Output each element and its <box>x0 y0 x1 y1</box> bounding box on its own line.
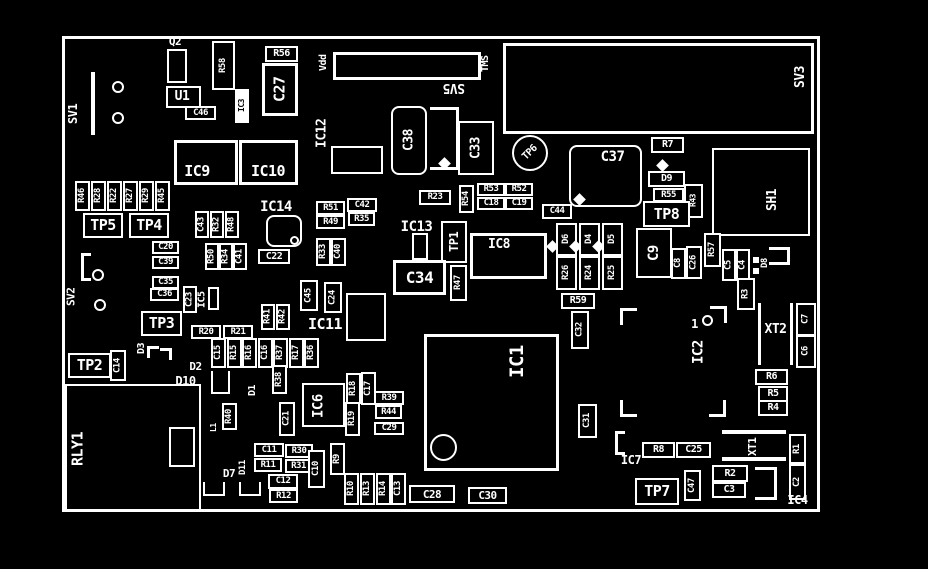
sv3-designator: SV3 <box>790 57 811 98</box>
ic2-pin1-label: 1 <box>689 316 700 332</box>
ic9-designator: IC9 <box>178 162 216 181</box>
tp1-designator: TP1 <box>441 221 467 263</box>
r21-designator: R21 <box>223 325 253 339</box>
r19-designator: R19 <box>345 402 360 436</box>
ic1-designator: IC1 <box>502 336 533 387</box>
r46-designator: R46 <box>75 181 90 211</box>
c7-designator: C7 <box>796 303 816 336</box>
r9-designator: R9 <box>330 443 345 475</box>
d11-pads <box>239 482 261 496</box>
tp3-designator: TP3 <box>141 311 182 336</box>
tp6-diagonal-label: TP6 <box>521 144 540 163</box>
r55-designator: R55 <box>653 188 684 202</box>
ic12-designator: IC12 <box>313 110 331 157</box>
vdd-designator: Vdd <box>317 46 331 79</box>
ic2-pin1 <box>702 315 713 326</box>
d7-pads <box>203 482 225 496</box>
tp7-designator: TP7 <box>635 478 679 505</box>
sv1-pad-2 <box>112 112 124 124</box>
r24-designator: R24 <box>579 256 600 290</box>
r50-designator: R50 <box>205 243 219 270</box>
xt2-designator: XT2 <box>759 319 792 339</box>
r6-designator: R6 <box>755 369 788 385</box>
c40-designator: C40 <box>331 238 346 266</box>
r51-designator: R51 <box>316 201 345 215</box>
ic12-outline <box>331 146 383 174</box>
r44-designator: R44 <box>375 405 402 419</box>
q2-designator: Q2 <box>164 35 186 48</box>
c25-designator: C25 <box>676 442 711 458</box>
tp8-designator: TP8 <box>643 201 690 227</box>
ic2-designator: IC2 <box>687 334 710 371</box>
r4-designator: R4 <box>758 400 788 416</box>
c23-designator: C23 <box>183 286 197 313</box>
sv2-pad-2 <box>94 299 106 311</box>
r20-designator: R20 <box>191 325 221 339</box>
c33-designator: C33 <box>458 121 494 175</box>
c30-designator: C30 <box>468 487 507 504</box>
r56-designator: R56 <box>265 46 298 62</box>
r29-designator: R29 <box>139 181 154 211</box>
c15-designator: C15 <box>211 338 226 368</box>
r58-designator: R58 <box>212 41 235 90</box>
c12-designator: C12 <box>268 474 298 489</box>
c36-designator: C36 <box>150 288 179 301</box>
pcb-silkscreen-view: SV1Q2R58R56C27U1C46IC3IC9IC10VddTMSSV5IC… <box>0 0 928 569</box>
c27-designator: C27 <box>262 63 298 116</box>
c3-designator: C3 <box>712 482 746 498</box>
r8-designator: R8 <box>642 442 675 458</box>
r17-designator: R17 <box>289 338 304 368</box>
r36-designator: R36 <box>304 338 319 368</box>
ic2-corner <box>620 308 637 325</box>
c4-designator: C4 <box>736 249 750 281</box>
ic1-pin1 <box>430 434 457 461</box>
ic2-corner <box>620 400 637 417</box>
c14-designator: C14 <box>110 350 126 381</box>
r22-designator: R22 <box>107 181 122 211</box>
r53-designator: R53 <box>477 183 505 196</box>
sv1-pad-1 <box>112 81 124 93</box>
d10-pads <box>211 371 230 394</box>
ic11-designator: IC11 <box>300 316 350 333</box>
sv2-designator: SV2 <box>63 281 79 312</box>
c5-designator: C5 <box>722 249 736 281</box>
sv2-pad-1 <box>92 269 104 281</box>
pad-mark <box>147 346 159 358</box>
pad-mark <box>160 348 172 360</box>
c38-designator: C38 <box>391 106 427 175</box>
r25-designator: R25 <box>602 256 623 290</box>
c13-designator: C13 <box>391 473 406 505</box>
d8-bracket <box>769 247 790 265</box>
sh1-outline <box>712 148 810 236</box>
c37-designator: C37 <box>590 148 635 165</box>
c22-designator: C22 <box>258 249 290 264</box>
r14-designator: R14 <box>376 473 391 505</box>
sv5-connector <box>333 52 481 80</box>
r41-designator: R41 <box>261 304 275 330</box>
c6-designator: C6 <box>796 335 816 368</box>
ic4-designator: IC4 <box>784 493 811 507</box>
d11-designator: D11 <box>237 457 250 479</box>
ic7-bracket <box>615 431 625 455</box>
c31-designator: C31 <box>578 404 597 438</box>
r18-designator: R18 <box>346 373 361 404</box>
r27-designator: R27 <box>123 181 138 211</box>
ic8-designator: IC8 <box>482 237 516 252</box>
ic14-designator: IC14 <box>252 199 300 215</box>
ic6-designator: IC6 <box>307 389 330 424</box>
r10-designator: R10 <box>344 473 359 505</box>
r48-designator: R48 <box>225 211 239 238</box>
c47-designator: C47 <box>684 470 701 501</box>
c41-designator: C41 <box>233 243 247 270</box>
r47-designator: R47 <box>450 265 467 301</box>
tp4-designator: TP4 <box>129 213 169 238</box>
r39-designator: R39 <box>374 391 404 405</box>
r33-designator: R33 <box>316 238 331 266</box>
r16-designator: R16 <box>242 338 257 368</box>
ic5-outline <box>208 287 219 310</box>
r42-designator: R42 <box>276 304 290 330</box>
c20-designator: C20 <box>152 241 179 254</box>
c19-designator: C19 <box>505 197 533 210</box>
r2-c3-bracket <box>755 467 777 500</box>
c16-designator: C16 <box>258 338 273 368</box>
ic13-outline <box>412 233 428 260</box>
r35-designator: R35 <box>348 212 375 226</box>
r7-designator: R7 <box>651 137 684 153</box>
r40-designator: R40 <box>222 403 237 430</box>
r23-designator: R23 <box>419 190 451 205</box>
c21-designator: C21 <box>279 402 295 436</box>
c32-designator: C32 <box>571 311 589 349</box>
c28-designator: C28 <box>409 485 455 503</box>
r11-designator: R11 <box>254 458 282 472</box>
r26-designator: R26 <box>556 256 577 290</box>
r38-designator: R38 <box>272 365 287 394</box>
c39-designator: C39 <box>152 256 179 269</box>
r54-designator: R54 <box>459 185 474 213</box>
d5-designator: D5 <box>602 223 623 256</box>
c9-designator: C9 <box>636 228 672 278</box>
r28-designator: R28 <box>91 181 106 211</box>
r15-designator: R15 <box>227 338 242 368</box>
r37-designator: R37 <box>273 338 288 368</box>
r12-designator: R12 <box>269 489 298 503</box>
ic2-corner <box>709 400 726 417</box>
tp6-designator: TP6 <box>512 135 548 171</box>
tms-designator: TMS <box>479 47 493 81</box>
c44-designator: C44 <box>542 204 572 219</box>
ic7-designator: IC7 <box>617 453 645 467</box>
c11-designator: C11 <box>254 443 284 457</box>
c18-designator: C18 <box>477 197 505 210</box>
r57-designator: R57 <box>704 233 721 267</box>
r49-designator: R49 <box>316 215 345 229</box>
tp5-designator: TP5 <box>83 213 123 238</box>
c34-designator: C34 <box>393 260 446 295</box>
ic14-pin1 <box>290 236 299 245</box>
sv5-designator: SV5 <box>435 80 473 96</box>
d1-designator: D1 <box>246 380 260 401</box>
r32-designator: R32 <box>210 211 224 238</box>
r52-designator: R52 <box>505 183 533 196</box>
r2-designator: R2 <box>712 465 748 482</box>
u1-designator: U1 <box>170 89 194 104</box>
r34-designator: R34 <box>219 243 233 270</box>
r13-designator: R13 <box>360 473 375 505</box>
ic10-designator: IC10 <box>241 162 295 181</box>
rly1-designator: RLY1 <box>67 416 89 482</box>
sv1-designator: SV1 <box>64 94 82 134</box>
sh1-designator: SH1 <box>762 180 783 220</box>
c46-designator: C46 <box>185 106 216 120</box>
c29-designator: C29 <box>374 422 404 435</box>
c8-designator: C8 <box>671 248 686 279</box>
r1-designator: R1 <box>789 434 806 464</box>
c45-designator: C45 <box>300 280 318 311</box>
ic11-outline <box>346 293 386 341</box>
d9-designator: D9 <box>648 171 685 187</box>
r59-designator: R59 <box>561 293 595 309</box>
c43-designator: C43 <box>195 211 209 238</box>
d2-designator: D2 <box>185 360 206 373</box>
rly1-inner <box>169 427 195 467</box>
q2-outline <box>167 49 187 83</box>
r45-designator: R45 <box>155 181 170 211</box>
sv2-bracket <box>81 253 91 281</box>
c10-designator: C10 <box>308 450 325 488</box>
sv3-outline <box>503 43 814 134</box>
r3-designator: R3 <box>737 278 755 310</box>
sv1-line <box>91 72 95 135</box>
l1-designator: L1 <box>208 419 220 437</box>
c24-designator: C24 <box>324 282 342 313</box>
c42-designator: C42 <box>347 198 377 212</box>
ic3-designator: IC3 <box>235 89 249 123</box>
tp2-designator: TP2 <box>68 353 111 378</box>
c26-designator: C26 <box>686 246 702 279</box>
xt1-designator: XT1 <box>743 432 762 461</box>
